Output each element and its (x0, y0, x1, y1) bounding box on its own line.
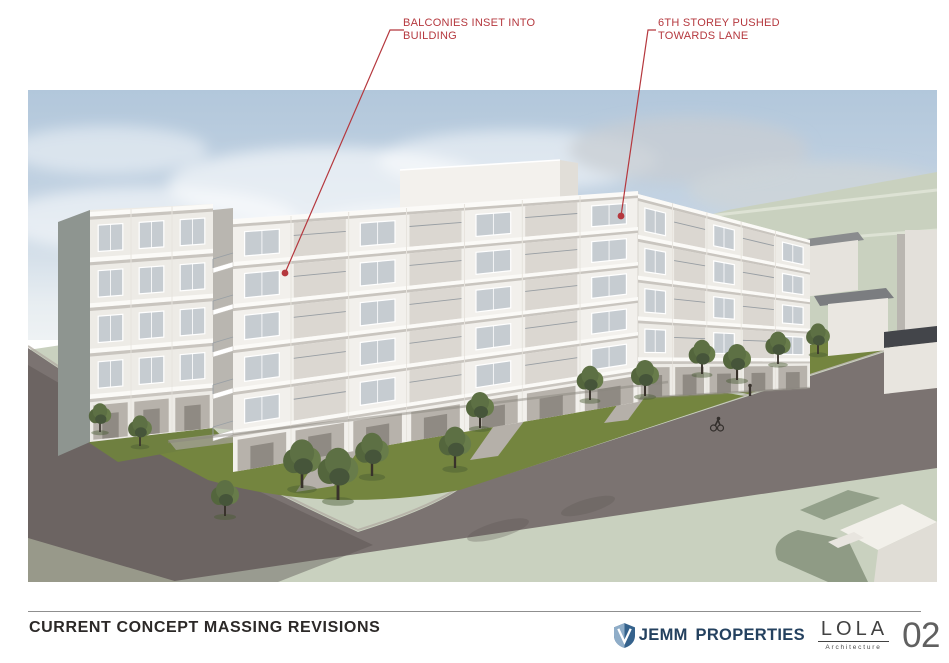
render-scene (28, 90, 937, 582)
annotation-sixth-storey-line2: TOWARDS LANE (658, 30, 780, 43)
massing-render-image (28, 90, 937, 582)
lola-name: LOLA (818, 619, 889, 642)
lola-logo: LOLA Architecture (818, 619, 889, 651)
annotation-balconies: BALCONIES INSET INTO BUILDING (403, 17, 535, 43)
annotation-sixth-storey-line1: 6TH STOREY PUSHED (658, 17, 780, 30)
brand-row: JEMM PROPERTIES LOLA Architecture 02 (600, 612, 940, 658)
annotation-sixth-storey: 6TH STOREY PUSHED TOWARDS LANE (658, 17, 780, 43)
slide-title: CURRENT CONCEPT MASSING REVISIONS (29, 619, 380, 637)
jemm-logo: JEMM PROPERTIES (614, 623, 805, 648)
shield-icon (614, 623, 635, 648)
annotation-balconies-line1: BALCONIES INSET INTO (403, 17, 535, 30)
annotation-balconies-line2: BUILDING (403, 30, 535, 43)
lola-tagline: Architecture (825, 644, 881, 651)
page-number: 02 (902, 618, 940, 653)
slide-page: BALCONIES INSET INTO BUILDING 6TH STOREY… (0, 0, 949, 663)
jemm-name: JEMM PROPERTIES (639, 626, 805, 645)
